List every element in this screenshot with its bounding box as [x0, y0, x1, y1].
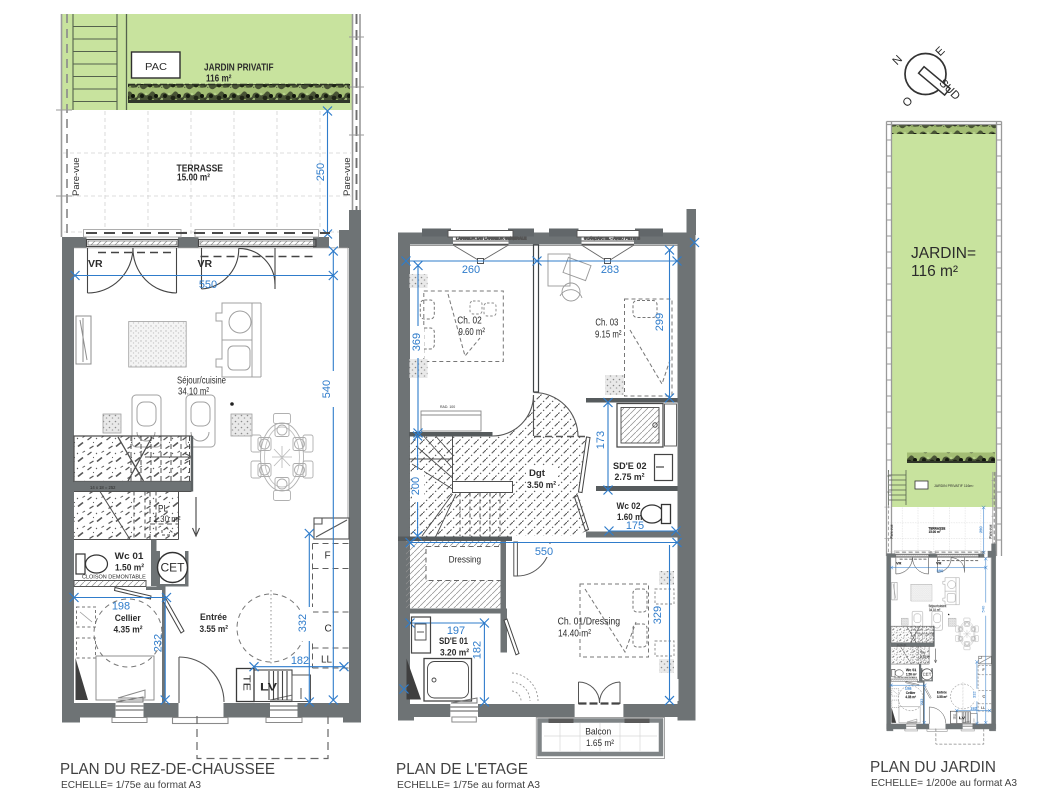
svg-text:34.10 m²: 34.10 m² [178, 387, 210, 398]
svg-text:TE: TE [241, 675, 253, 691]
svg-text:3.20 m²: 3.20 m² [440, 648, 469, 659]
svg-text:STANDARTEL - AVEC PETIT B: STANDARTEL - AVEC PETIT B [584, 236, 640, 241]
svg-text:Cellier: Cellier [115, 613, 141, 624]
svg-text:PLAN DU JARDIN: PLAN DU JARDIN [870, 759, 996, 776]
svg-text:Wc 02: Wc 02 [617, 501, 641, 512]
svg-text:550: 550 [535, 546, 553, 558]
svg-text:C: C [325, 624, 332, 635]
svg-text:232: 232 [153, 634, 165, 652]
svg-text:3.50 m²: 3.50 m² [527, 480, 556, 491]
svg-text:550: 550 [199, 279, 217, 291]
svg-text:ECHELLE= 1/200e au format A3: ECHELLE= 1/200e au format A3 [871, 777, 1017, 789]
svg-text:182: 182 [472, 641, 484, 659]
svg-text:LV: LV [260, 682, 278, 694]
svg-text:4.35 m²: 4.35 m² [114, 625, 143, 636]
svg-text:PLAN DU REZ-DE-CHAUSSEE: PLAN DU REZ-DE-CHAUSSEE [60, 761, 275, 778]
svg-text:Pare-vue: Pare-vue [71, 157, 82, 196]
svg-text:175: 175 [626, 520, 644, 532]
svg-text:Balcon: Balcon [585, 727, 611, 738]
svg-text:JARDIN PRIVATIF: JARDIN PRIVATIF [204, 63, 274, 74]
svg-text:369: 369 [411, 333, 423, 351]
svg-text:Dgt: Dgt [529, 468, 546, 479]
svg-text:1.50 m²: 1.50 m² [115, 563, 144, 574]
svg-text:JARDIN=: JARDIN= [911, 245, 976, 262]
svg-text:CET: CET [161, 563, 185, 575]
svg-text:VR: VR [88, 258, 103, 270]
svg-text:182: 182 [291, 655, 309, 667]
svg-text:PLAN DE L'ETAGE: PLAN DE L'ETAGE [396, 761, 528, 778]
svg-text:SD'E 02: SD'E 02 [613, 461, 647, 472]
svg-text:SD'E 01: SD'E 01 [439, 636, 469, 647]
svg-text:116 m²: 116 m² [911, 263, 958, 280]
svg-text:Dressing: Dressing [449, 555, 482, 566]
svg-text:200: 200 [410, 477, 422, 495]
svg-text:198: 198 [112, 601, 130, 613]
svg-text:Séjour/cuisine: Séjour/cuisine [177, 376, 226, 387]
svg-text:329: 329 [652, 606, 664, 624]
svg-text:CLOISON DEMONTABLE: CLOISON DEMONTABLE [82, 575, 146, 581]
svg-text:283: 283 [601, 264, 619, 276]
svg-text:Ch. 02: Ch. 02 [457, 316, 482, 327]
svg-text:9.60 m²: 9.60 m² [459, 327, 486, 338]
svg-text:VR: VR [198, 258, 213, 270]
svg-text:332: 332 [297, 614, 309, 632]
svg-text:1.65 m²: 1.65 m² [586, 738, 614, 749]
svg-text:14.40 m²: 14.40 m² [558, 629, 592, 640]
svg-text:Ch. 01/Dressing: Ch. 01/Dressing [558, 617, 621, 628]
svg-text:116 m²: 116 m² [206, 74, 232, 85]
svg-text:F: F [325, 551, 331, 562]
svg-text:14 x 18 = 252: 14 x 18 = 252 [90, 485, 116, 490]
svg-text:ECHELLE= 1/75e au format A3: ECHELLE= 1/75e au format A3 [61, 779, 201, 791]
svg-text:PL: PL [158, 504, 168, 514]
svg-text:LL: LL [321, 655, 332, 666]
svg-text:15.00 m²: 15.00 m² [177, 173, 211, 184]
svg-text:2.75 m²: 2.75 m² [615, 472, 645, 483]
svg-text:Wc 01: Wc 01 [115, 551, 145, 562]
svg-text:1.30 m²: 1.30 m² [154, 514, 181, 524]
svg-text:299: 299 [654, 313, 666, 331]
svg-text:173: 173 [595, 431, 607, 449]
svg-text:Entrée: Entrée [200, 612, 227, 623]
svg-text:540: 540 [321, 380, 333, 398]
svg-text:Pare-vue: Pare-vue [342, 157, 353, 196]
svg-text:JARDIN PRIVATIF 116m²: JARDIN PRIVATIF 116m² [934, 484, 974, 488]
svg-text:Ch. 03: Ch. 03 [595, 318, 618, 329]
svg-text:PAC: PAC [145, 61, 167, 73]
svg-text:LARGEUR 140 LARGEUR GENERALE: LARGEUR 140 LARGEUR GENERALE [456, 236, 527, 241]
svg-text:9.15 m²: 9.15 m² [595, 330, 622, 341]
svg-text:250: 250 [315, 163, 327, 181]
svg-text:260: 260 [462, 264, 480, 276]
svg-text:3.55 m²: 3.55 m² [200, 624, 229, 635]
svg-text:RAD. 100: RAD. 100 [440, 405, 455, 409]
svg-text:ECHELLE= 1/75e au format A3: ECHELLE= 1/75e au format A3 [397, 779, 540, 791]
